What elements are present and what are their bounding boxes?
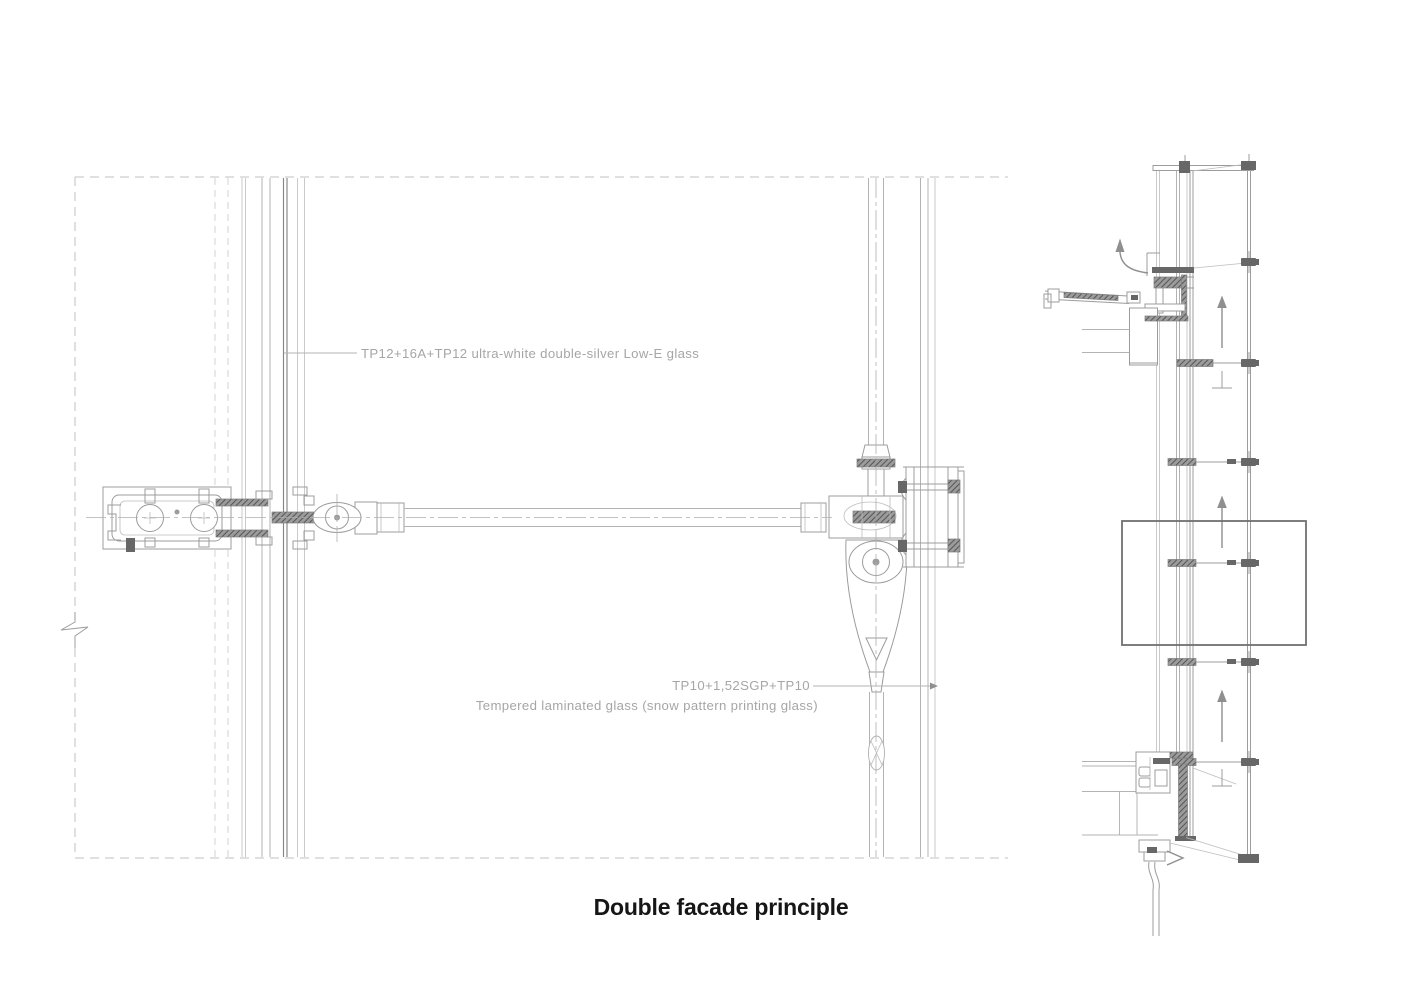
turnbuckle bbox=[869, 736, 885, 770]
plan-detail-view: TP12+16A+TP12 ultra-white double-silver … bbox=[61, 177, 1008, 858]
canopy bbox=[1044, 289, 1140, 308]
facade-detail-drawing: TP12+16A+TP12 ultra-white double-silver … bbox=[0, 0, 1414, 1000]
inner-glass-label: TP12+16A+TP12 ultra-white double-silver … bbox=[361, 346, 699, 361]
mullion-bolt bbox=[126, 538, 135, 552]
outer-glass-spec-label: TP10+1,52SGP+TP10 bbox=[672, 678, 810, 693]
airflow-intake-chevron bbox=[1167, 851, 1183, 865]
floor-slab-top bbox=[1082, 330, 1130, 353]
drawing-sheet: TP12+16A+TP12 ultra-white double-silver … bbox=[0, 0, 1414, 1000]
tie-rods bbox=[1168, 360, 1241, 785]
detail-callout-box bbox=[1122, 521, 1306, 645]
outer-glass-desc-label: Tempered laminated glass (snow pattern p… bbox=[476, 698, 818, 713]
airflow-up-arrow bbox=[1217, 296, 1227, 349]
clamp-plates bbox=[898, 467, 964, 567]
head-assembly bbox=[1130, 253, 1242, 365]
section-schematic-view bbox=[1044, 154, 1306, 936]
cast-spider-fitting bbox=[829, 178, 907, 857]
mullion-profile bbox=[103, 487, 231, 552]
airflow-exhaust-arrow bbox=[1116, 239, 1149, 274]
level-mark bbox=[1212, 769, 1232, 786]
pivot-eye-fitting bbox=[313, 494, 377, 542]
break-symbol-icon bbox=[61, 612, 88, 648]
drawing-title: Double facade principle bbox=[500, 894, 942, 921]
top-cap bbox=[1153, 154, 1256, 173]
sill-assembly bbox=[1136, 752, 1259, 865]
drain-pipe bbox=[1149, 862, 1160, 936]
leader-arrowhead bbox=[930, 683, 938, 690]
level-mark bbox=[1212, 371, 1232, 388]
outer-facade-glass-lines bbox=[921, 178, 936, 857]
airflow-up-arrow bbox=[1217, 690, 1227, 743]
